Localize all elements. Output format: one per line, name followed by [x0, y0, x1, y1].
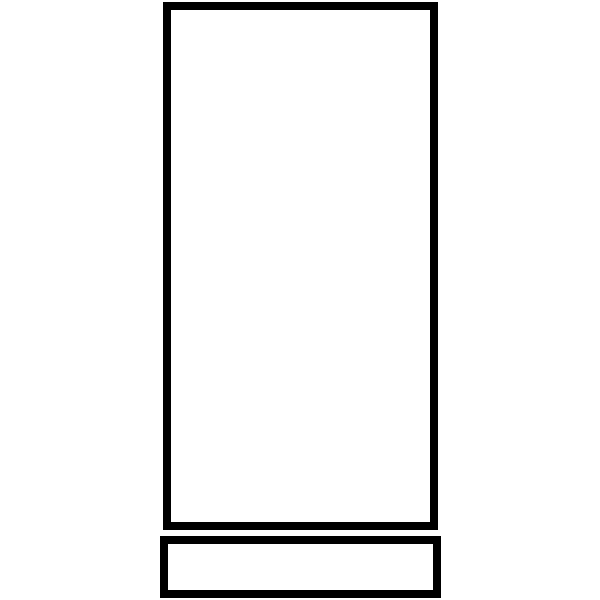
- wide-rectangle-outline: [160, 536, 441, 598]
- tall-rectangle-outline: [163, 2, 438, 530]
- drawing-canvas: [0, 0, 600, 600]
